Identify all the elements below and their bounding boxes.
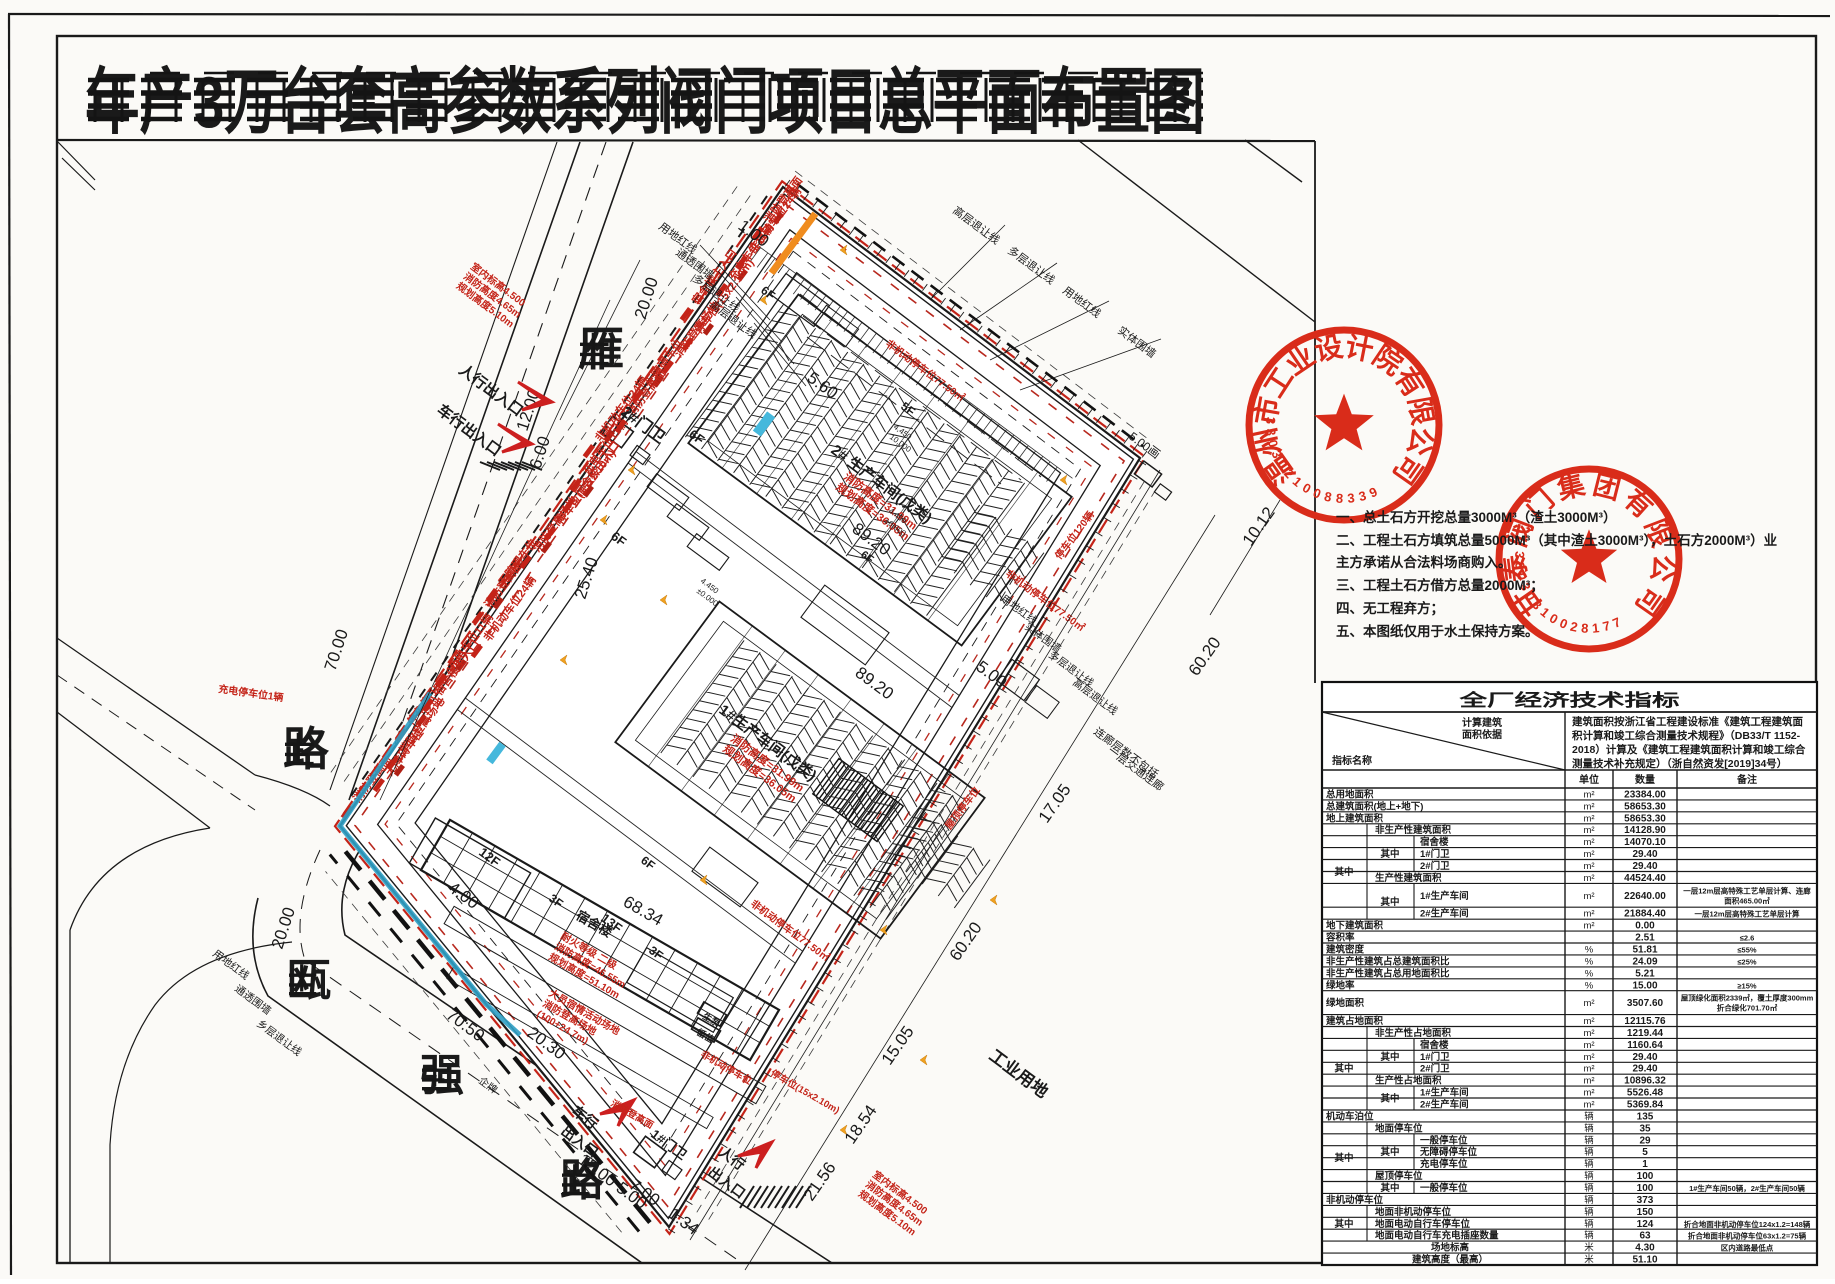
svg-text:辆: 辆 [1584,1218,1594,1230]
svg-text:设: 设 [1312,331,1345,367]
svg-text:三、工程土石方借方总量2000M³；: 三、工程土石方借方总量2000M³； [1336,577,1544,594]
svg-text:29: 29 [1639,1135,1651,1146]
svg-text:折合地面非机动停车位63x1.2=75辆: 折合地面非机动停车位63x1.2=75辆 [1688,1231,1807,1241]
svg-text:3: 3 [1263,428,1279,437]
svg-text:非生产性建筑占总用地面积比: 非生产性建筑占总用地面积比 [1326,967,1450,979]
svg-text:≤25%: ≤25% [1737,957,1756,966]
svg-text:辆: 辆 [1584,1170,1594,1182]
svg-text:总建筑面积(地上+地下): 总建筑面积(地上+地下) [1326,800,1423,812]
svg-text:其中: 其中 [1334,1152,1353,1164]
svg-text:5: 5 [1642,1147,1648,1158]
svg-text:全厂经济技术指标: 全厂经济技术指标 [1458,690,1680,710]
svg-text:其中: 其中 [1380,896,1399,908]
svg-text:m²: m² [1583,1052,1594,1063]
svg-text:其中: 其中 [1334,866,1353,878]
svg-text:58653.30: 58653.30 [1624,813,1666,824]
svg-text:辆: 辆 [1584,1194,1594,1206]
svg-text:8: 8 [1581,620,1589,635]
svg-text:一般停车位: 一般停车位 [1420,1134,1468,1146]
svg-text:计算建筑: 计算建筑 [1462,716,1502,729]
svg-text:限: 限 [1403,394,1438,427]
svg-text:米: 米 [1584,1254,1594,1266]
svg-text:地面非机动停车位: 地面非机动停车位 [1375,1206,1452,1218]
svg-text:15.00: 15.00 [1632,980,1657,991]
svg-text:4.30: 4.30 [1635,1243,1655,1254]
svg-text:3: 3 [1347,490,1356,506]
svg-text:1219.44: 1219.44 [1627,1028,1664,1039]
svg-text:1#生产车间: 1#生产车间 [1420,1087,1469,1099]
svg-text:124: 124 [1637,1219,1654,1230]
svg-text:m²: m² [1583,1028,1594,1039]
svg-text:其中: 其中 [1334,1063,1353,1075]
svg-text:21884.40: 21884.40 [1624,909,1666,920]
svg-text:宿舍楼: 宿舍楼 [1420,1039,1449,1051]
svg-text:5.21: 5.21 [1635,968,1655,979]
svg-text:2#生产车间: 2#生产车间 [1420,1099,1469,1111]
svg-text:生产性建筑面积: 生产性建筑面积 [1375,872,1442,884]
svg-text:区内道路最低点: 区内道路最低点 [1721,1243,1774,1253]
svg-text:地面电动自行车停车位: 地面电动自行车停车位 [1375,1218,1471,1230]
svg-text:非生产性建筑占总建筑面积比: 非生产性建筑占总建筑面积比 [1326,955,1450,967]
svg-text:150: 150 [1637,1207,1654,1218]
svg-text:强: 强 [420,1051,464,1100]
svg-text:其中: 其中 [1380,1146,1399,1158]
svg-text:绿地面积: 绿地面积 [1326,997,1365,1009]
svg-text:地上建筑面积: 地上建筑面积 [1326,812,1384,824]
svg-text:建筑占地面积: 建筑占地面积 [1325,1015,1384,1027]
svg-text:非生产性占地面积: 非生产性占地面积 [1375,1027,1452,1039]
svg-text:其中: 其中 [1380,1051,1399,1063]
svg-text:2#生产车间: 2#生产车间 [1420,908,1469,920]
svg-text:机动车泊位: 机动车泊位 [1326,1110,1374,1122]
svg-text:米: 米 [1584,1242,1594,1254]
svg-text:测量技术补充规定）（浙自然资发[2019]34号）: 测量技术补充规定）（浙自然资发[2019]34号） [1572,757,1787,770]
svg-text:m²: m² [1583,921,1594,932]
svg-text:2#门卫: 2#门卫 [1420,1063,1450,1075]
svg-text:m²: m² [1583,1064,1594,1075]
svg-text:35: 35 [1639,1123,1651,1134]
svg-text:1#门卫: 1#门卫 [1420,1051,1450,1063]
svg-text:1160.64: 1160.64 [1627,1040,1663,1051]
svg-text:2.51: 2.51 [1635,933,1655,944]
svg-text:12115.76: 12115.76 [1624,1016,1666,1027]
svg-text:29.40: 29.40 [1632,1052,1657,1063]
svg-text:m²: m² [1583,813,1594,824]
svg-text:二、工程土石方填筑总量5000M³（其中渣土3000M³），: 二、工程土石方填筑总量5000M³（其中渣土3000M³），土石方2000M³）… [1336,532,1777,548]
svg-text:一、总土石方开挖总量3000M³（渣土3000M³）: 一、总土石方开挖总量3000M³（渣土3000M³） [1336,509,1617,525]
svg-text:51.10: 51.10 [1632,1255,1657,1266]
svg-text:51.81: 51.81 [1632,944,1657,955]
svg-text:2018）计算及《建筑工程建筑面积计算和竣工综合: 2018）计算及《建筑工程建筑面积计算和竣工综合 [1572,743,1806,756]
svg-text:≤2.6: ≤2.6 [1740,934,1755,943]
svg-text:辆: 辆 [1584,1158,1594,1170]
svg-text:备注: 备注 [1736,773,1757,786]
svg-text:m²: m² [1583,873,1594,884]
svg-text:29.40: 29.40 [1632,849,1657,860]
svg-text:屋顶停车位: 屋顶停车位 [1375,1170,1423,1182]
svg-text:5526.48: 5526.48 [1627,1088,1664,1099]
svg-text:373: 373 [1637,1195,1654,1206]
svg-text:四、无工程弃方；: 四、无工程弃方； [1336,600,1444,617]
svg-text:44524.40: 44524.40 [1624,873,1666,884]
svg-text:充电停车位: 充电停车位 [1420,1158,1468,1170]
svg-text:29.40: 29.40 [1632,861,1657,872]
svg-text:路: 路 [283,723,330,775]
svg-text:m²: m² [1583,891,1594,902]
svg-text:其中: 其中 [1380,848,1399,860]
svg-text:m²: m² [1583,789,1594,800]
svg-text:非机动停车位: 非机动停车位 [1326,1194,1384,1206]
svg-text:22640.00: 22640.00 [1624,891,1666,902]
svg-text:135: 135 [1637,1111,1654,1122]
svg-text:3: 3 [1512,551,1527,559]
svg-text:100: 100 [1637,1171,1654,1182]
svg-text:主方承诺从合法料场商购入。: 主方承诺从合法料场商购入。 [1336,554,1512,570]
svg-text:地面停车位: 地面停车位 [1375,1122,1423,1134]
svg-text:五、本图纸仅用于水土保持方案。: 五、本图纸仅用于水土保持方案。 [1336,623,1539,639]
svg-text:100: 100 [1637,1183,1654,1194]
svg-text:1#生产车间50辆，2#生产车间50辆: 1#生产车间50辆，2#生产车间50辆 [1689,1183,1805,1193]
svg-text:非生产性建筑面积: 非生产性建筑面积 [1375,824,1452,836]
svg-text:数量: 数量 [1635,773,1655,786]
svg-text:建筑密度: 建筑密度 [1325,943,1365,955]
svg-text:0.00: 0.00 [1635,921,1655,932]
svg-text:29.40: 29.40 [1632,1064,1657,1075]
svg-text:58653.30: 58653.30 [1624,801,1666,812]
svg-text:无障碍停车位: 无障碍停车位 [1419,1146,1478,1158]
svg-text:63: 63 [1639,1231,1651,1242]
svg-text:m²: m² [1583,998,1594,1009]
svg-text:年产3万台套高参数系列阀门项目总平面布置图: 年产3万台套高参数系列阀门项目总平面布置图 [85,63,1205,143]
svg-text:m²: m² [1583,837,1594,848]
svg-text:公: 公 [1646,553,1679,583]
svg-text:14070.10: 14070.10 [1624,837,1666,848]
svg-text:宿舍楼: 宿舍楼 [1420,836,1449,848]
svg-text:地面电动自行车充电插座数量: 地面电动自行车充电插座数量 [1375,1230,1499,1242]
svg-text:m²: m² [1583,801,1594,812]
svg-text:辆: 辆 [1584,1182,1594,1194]
svg-text:m²: m² [1583,1040,1594,1051]
svg-text:m²: m² [1583,909,1594,920]
svg-text:折合绿化701.70㎡: 折合绿化701.70㎡ [1717,1003,1778,1013]
svg-text:场地标高: 场地标高 [1431,1242,1470,1254]
svg-text:3: 3 [1263,416,1278,424]
svg-text:m²: m² [1583,1076,1594,1087]
svg-text:1: 1 [1642,1159,1648,1170]
svg-text:面积465.00㎡: 面积465.00㎡ [1724,895,1770,905]
svg-text:指标名称: 指标名称 [1332,754,1372,767]
svg-text:建筑面积按浙江省工程建设标准《建筑工程建筑面: 建筑面积按浙江省工程建设标准《建筑工程建筑面 [1571,715,1803,728]
svg-text:辆: 辆 [1584,1122,1594,1134]
svg-text:其中: 其中 [1334,1218,1353,1230]
svg-text:容积率: 容积率 [1325,932,1355,944]
svg-text:一般停车位: 一般停车位 [1420,1182,1468,1194]
svg-text:m²: m² [1583,1100,1594,1111]
svg-text:m²: m² [1583,861,1594,872]
svg-text:3507.60: 3507.60 [1627,998,1664,1009]
svg-text:地下建筑面积: 地下建筑面积 [1326,920,1384,932]
svg-text:m²: m² [1583,849,1594,860]
svg-text:1#门卫: 1#门卫 [1420,848,1450,860]
svg-text:一层12m层高特殊工艺单层计算、连廊: 一层12m层高特殊工艺单层计算、连廊 [1683,885,1811,895]
svg-text:辆: 辆 [1584,1134,1594,1146]
svg-text:≥15%: ≥15% [1737,981,1756,990]
svg-text:生产性占地面积: 生产性占地面积 [1375,1075,1442,1087]
svg-text:8: 8 [1335,491,1343,506]
svg-text:辆: 辆 [1584,1110,1594,1122]
svg-text:1#生产车间: 1#生产车间 [1420,890,1469,902]
svg-text:屋顶绿化面积2339㎡，覆土厚度300mm: 屋顶绿化面积2339㎡，覆土厚度300mm [1681,993,1814,1003]
svg-text:2#门卫: 2#门卫 [1420,860,1450,872]
svg-text:≤55%: ≤55% [1737,945,1756,954]
svg-text:10896.32: 10896.32 [1624,1076,1666,1087]
svg-text:5369.84: 5369.84 [1627,1100,1664,1111]
svg-text:14128.90: 14128.90 [1624,825,1666,836]
svg-text:辆: 辆 [1584,1146,1594,1158]
svg-text:一层12m层高特殊工艺单层计算: 一层12m层高特殊工艺单层计算 [1694,909,1800,919]
svg-text:雁: 雁 [578,323,624,375]
svg-text:瓯: 瓯 [287,956,331,1005]
svg-text:%: % [1585,968,1594,979]
svg-text:24.09: 24.09 [1632,956,1657,967]
svg-text:3: 3 [1512,561,1528,570]
svg-text:辆: 辆 [1584,1230,1594,1242]
svg-text:建筑高度（最高）: 建筑高度（最高） [1411,1254,1488,1266]
svg-text:总用地面积: 总用地面积 [1326,788,1374,800]
svg-text:%: % [1585,944,1594,955]
svg-text:其中: 其中 [1380,1182,1399,1194]
svg-text:单位: 单位 [1579,773,1599,786]
svg-text:23384.00: 23384.00 [1624,789,1666,800]
svg-text:绿地率: 绿地率 [1326,979,1355,991]
svg-text:m²: m² [1583,1088,1594,1099]
svg-text:其中: 其中 [1380,1093,1399,1105]
svg-text:%: % [1585,956,1594,967]
svg-text:面积依据: 面积依据 [1462,728,1502,741]
svg-text:折合地面非机动停车位124x1.2=148辆: 折合地面非机动停车位124x1.2=148辆 [1684,1219,1811,1229]
svg-text:m²: m² [1583,1016,1594,1027]
svg-text:积计算和竣工综合测量技术规程》（DB33/T 1152-: 积计算和竣工综合测量技术规程》（DB33/T 1152- [1572,729,1801,742]
svg-text:m²: m² [1583,825,1594,836]
svg-text:辆: 辆 [1584,1206,1594,1218]
svg-text:%: % [1585,980,1594,991]
